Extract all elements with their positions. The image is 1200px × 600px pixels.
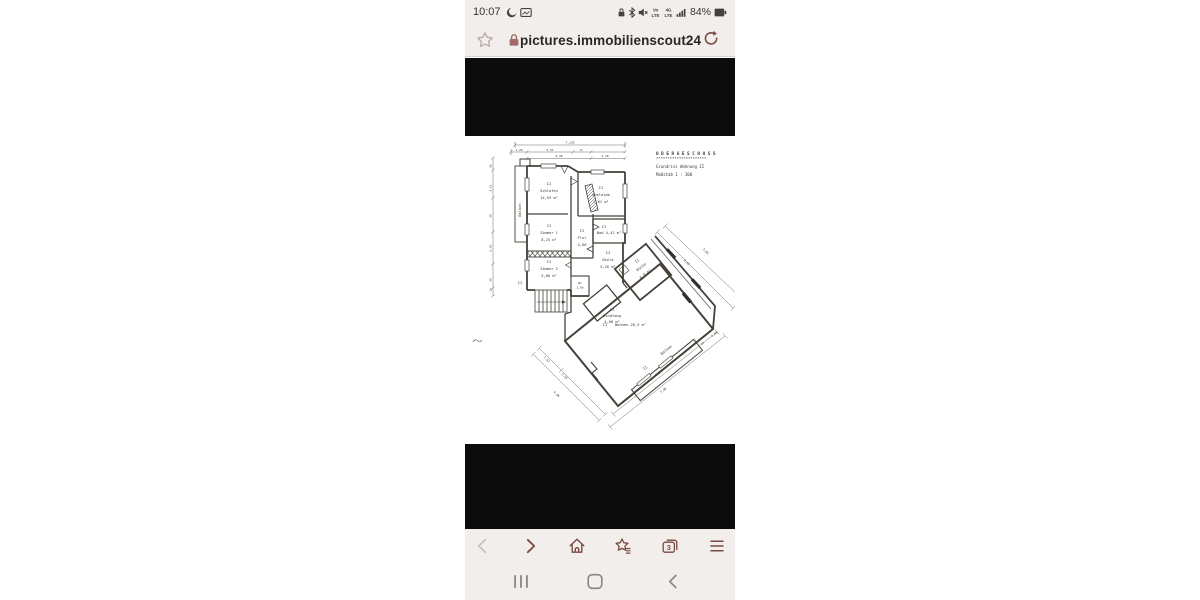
dimension-label: 36 xyxy=(489,214,493,218)
dimension-label: 36 xyxy=(489,278,493,282)
dimension-label: 7,06 xyxy=(659,386,667,394)
room-area: 4,60 xyxy=(578,243,587,247)
unit-marker: II xyxy=(606,251,610,255)
floorplan-image: O B E R G E S C H O S S*****************… xyxy=(465,136,735,444)
volte-top-text: Vo xyxy=(653,7,659,12)
unit-marker: II xyxy=(547,260,551,264)
room-label: Windfang xyxy=(603,314,621,318)
android-nav-bar xyxy=(465,562,735,600)
letterbox-bottom xyxy=(465,444,735,529)
unit-marker: II xyxy=(610,308,614,312)
dimension-label: 6,02 xyxy=(683,258,691,266)
battery-percent: 84% xyxy=(690,6,711,18)
letterbox-top xyxy=(465,58,735,136)
status-right-icons: Vo LTE 4G LTE 84% xyxy=(617,6,727,18)
menu-button[interactable] xyxy=(707,536,727,556)
dimension-label: 3,61 xyxy=(489,184,493,191)
nav-home-icon xyxy=(587,573,603,590)
unit-marker: II xyxy=(547,224,551,228)
dimension-label: 4,38 xyxy=(555,154,562,158)
status-left-icons xyxy=(506,7,532,18)
recents-icon xyxy=(513,573,529,590)
signal-icon xyxy=(676,7,686,18)
volte-bottom-text: LTE xyxy=(652,13,660,18)
secure-lock-icon[interactable] xyxy=(508,33,520,47)
status-bar: 10:07 xyxy=(465,0,735,24)
room-label: Zimmer 1 xyxy=(540,231,558,235)
dimension-label: 1,52 xyxy=(543,355,551,363)
room-label: WC xyxy=(578,281,582,285)
home-icon xyxy=(567,536,587,556)
dimension-label: 4,86 xyxy=(553,390,561,398)
dimension-label: 36 xyxy=(489,164,493,168)
plan-scale: Maßstab 1 : 100 xyxy=(656,172,693,177)
back-chevron-icon xyxy=(473,536,493,556)
room-label: Bad 4,42 m² xyxy=(597,231,621,235)
bookmarks-button[interactable] xyxy=(613,536,633,556)
bookmark-star-icon[interactable] xyxy=(475,30,495,50)
moon-icon xyxy=(506,7,517,18)
dimension-label: 5,61 xyxy=(489,244,493,251)
room-area: 5,26 m² xyxy=(600,265,616,269)
dimension-label: 20 xyxy=(700,340,705,345)
room-label: Ankleide xyxy=(592,193,610,197)
room-label: Diele xyxy=(602,258,613,262)
room-area: 5,80 m² xyxy=(541,274,557,278)
bluetooth-icon xyxy=(628,7,636,18)
room-label: Flur xyxy=(578,236,588,240)
url-text[interactable]: pictures.immobilienscout24.de xyxy=(520,33,701,48)
room-label: Balkon xyxy=(660,344,673,355)
unit-marker: II xyxy=(603,323,607,327)
room-area: 7,61 m² xyxy=(593,200,609,204)
room-label: Zimmer 2 xyxy=(540,267,558,271)
back-button[interactable] xyxy=(473,536,493,556)
nav-back-icon xyxy=(665,573,681,590)
unit-marker: II xyxy=(547,182,551,186)
home-button[interactable] xyxy=(567,536,587,556)
mute-icon xyxy=(638,7,648,18)
room-label: Wohnen 28,5 m² xyxy=(615,323,646,327)
phone-screen: 10:07 xyxy=(465,0,735,600)
network-bottom-text: LTE xyxy=(665,13,673,18)
browser-toolbar: 3 xyxy=(465,529,735,562)
battery-icon xyxy=(714,7,727,18)
dimension-label: 7,135 xyxy=(565,141,574,145)
nav-home-button[interactable] xyxy=(587,573,603,590)
bookmarks-star-icon xyxy=(613,536,633,556)
dimension-label: 1,26 xyxy=(515,148,522,152)
tabs-icon: 3 xyxy=(660,536,680,556)
dimension-label: 3,83 xyxy=(702,247,710,255)
clock: 10:07 xyxy=(473,6,501,18)
recents-button[interactable] xyxy=(513,573,529,590)
network-top-text: 4G xyxy=(666,7,672,12)
unit-marker: II xyxy=(634,258,640,264)
forward-chevron-icon xyxy=(520,536,540,556)
unit-marker: II xyxy=(642,365,648,371)
unit-marker: II xyxy=(602,225,606,229)
dimension-label: 20 xyxy=(489,288,493,292)
dimension-label: 2,18 xyxy=(601,154,608,158)
refresh-icon[interactable] xyxy=(701,30,721,50)
screenshot-canvas: 10:07 xyxy=(0,0,1200,600)
lock-icon xyxy=(617,7,626,18)
menu-icon xyxy=(707,536,727,556)
volte-icon: Vo LTE xyxy=(650,7,661,18)
dimension-label: 13 xyxy=(579,148,583,152)
tab-count: 3 xyxy=(667,544,671,551)
plan-subtitle: Grundriss Wohnung II xyxy=(656,164,705,169)
room-area: 14,93 m² xyxy=(540,196,558,200)
room-label: Schlafen xyxy=(540,189,558,193)
network-type-icon: 4G LTE xyxy=(663,7,674,18)
room-label: Balkon xyxy=(518,203,522,216)
unit-marker: II xyxy=(599,186,603,190)
unit-marker: II xyxy=(518,281,522,285)
room-area: 1,66 xyxy=(576,286,583,290)
nav-back-button[interactable] xyxy=(665,573,681,590)
dimension-label: 2,55 xyxy=(561,372,569,380)
plan-title-underline: ********************** xyxy=(656,156,706,161)
unit-marker: II xyxy=(580,229,584,233)
forward-button[interactable] xyxy=(520,536,540,556)
address-bar[interactable]: pictures.immobilienscout24.de xyxy=(465,24,735,57)
floorplan-drawing: O B E R G E S C H O S S*****************… xyxy=(465,136,735,444)
room-area: 8,25 m² xyxy=(541,238,557,242)
tabs-button[interactable]: 3 xyxy=(660,536,680,556)
dimension-label: 3,51 xyxy=(546,148,553,152)
screenshot-icon xyxy=(520,7,532,18)
